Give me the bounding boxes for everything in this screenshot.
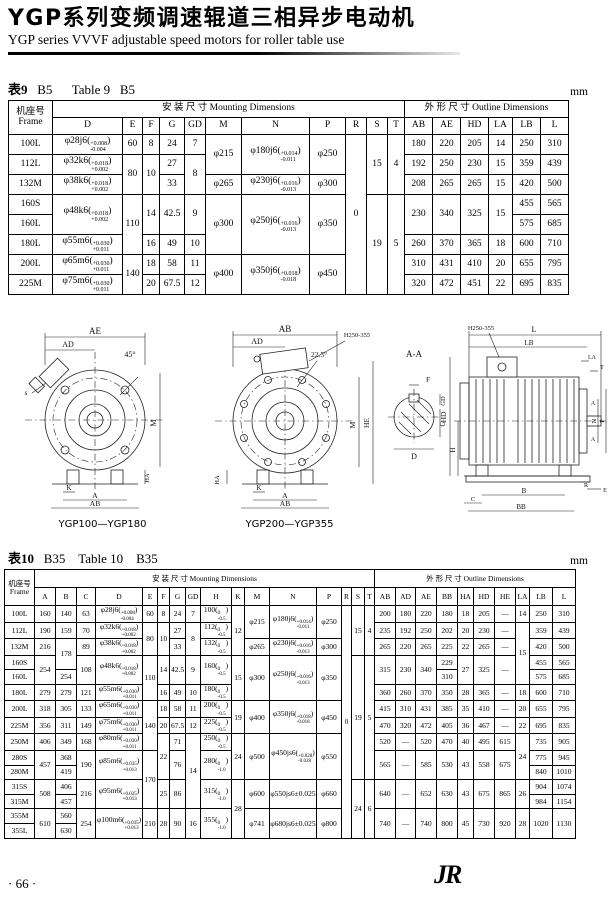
dim-m-label: M bbox=[348, 422, 357, 429]
table-cell: 260 bbox=[405, 235, 433, 255]
table-cell: φ600 bbox=[245, 780, 270, 809]
table-cell: 405 bbox=[437, 717, 458, 734]
table-cell: 18 bbox=[143, 255, 160, 275]
table-cell: 615 bbox=[495, 734, 516, 751]
table-cell: F bbox=[143, 118, 160, 135]
drawing-front-large: AB AD 22.5° H250-355 HE M HA K A AB YGP2… bbox=[197, 317, 382, 530]
table-cell: 8 bbox=[185, 155, 206, 195]
table-cell: P bbox=[310, 118, 346, 135]
table-cell: 28 bbox=[232, 780, 245, 838]
table-cell: 368 bbox=[56, 750, 77, 765]
table-cell: 208 bbox=[405, 175, 433, 195]
table-cell: 140 bbox=[143, 701, 158, 751]
table-cell: 230 bbox=[405, 195, 433, 235]
table-cell: 168 bbox=[77, 734, 96, 751]
table-cell: 180(0-0.5) bbox=[201, 684, 232, 701]
table-cell: φ180j6(+0.014-0.011) bbox=[242, 135, 310, 175]
table10: 机座号Frame安 装 尺 寸 Mounting Dimensions外 形 尺… bbox=[4, 569, 576, 838]
table-cell: 508 bbox=[35, 780, 56, 809]
table-cell: φ250 bbox=[310, 135, 346, 175]
table-cell: — bbox=[495, 717, 516, 734]
table-cell: 20 bbox=[516, 701, 530, 718]
table-cell: GD bbox=[186, 588, 201, 606]
table-cell: 340 bbox=[416, 655, 437, 684]
table-cell: 265 bbox=[461, 175, 489, 195]
dim-bb-label: BB bbox=[516, 503, 526, 511]
table-cell: 112L bbox=[5, 622, 35, 639]
table10-caption-row: 表10 B35 Table 10 B35 mm bbox=[8, 548, 588, 567]
table-cell: 16 bbox=[143, 235, 160, 255]
table-cell: 775 bbox=[530, 750, 553, 765]
table-cell: 11 bbox=[185, 255, 206, 275]
table-cell: 310 bbox=[541, 135, 569, 155]
table-cell: 67.5 bbox=[160, 275, 185, 295]
table-cell: 11 bbox=[186, 701, 201, 718]
table-cell: 25 bbox=[158, 780, 170, 809]
section-label: A-A bbox=[406, 349, 422, 359]
table-cell: 190 bbox=[35, 622, 56, 639]
table-cell: 431 bbox=[433, 255, 461, 275]
table-cell: 279 bbox=[56, 684, 77, 701]
table-cell: 385 bbox=[437, 701, 458, 718]
table-cell: — bbox=[495, 701, 516, 718]
table-cell: 467 bbox=[474, 717, 495, 734]
header-row: 机座号Frame安 装 尺 寸 Mounting Dimensions外 形 尺… bbox=[5, 570, 576, 588]
table-cell: 1130 bbox=[553, 809, 576, 838]
page-title-en: YGP series VVVF adjustable speed motors … bbox=[8, 32, 602, 48]
table-cell: φ80m6(+0.030+0.011) bbox=[96, 734, 143, 751]
table-cell: 310 bbox=[553, 606, 576, 623]
table-cell: φ230j6(+0.016-0.013) bbox=[270, 639, 317, 656]
drawing-caption-large: YGP200—YGP355 bbox=[246, 519, 334, 530]
table-cell: φ800 bbox=[317, 809, 342, 838]
table-cell: 565 bbox=[375, 750, 396, 779]
table-cell: 265 bbox=[375, 639, 396, 656]
table-cell: 160S bbox=[5, 655, 35, 670]
table-cell: 225 bbox=[437, 639, 458, 656]
table-cell: B bbox=[56, 588, 77, 606]
table-cell: 49 bbox=[160, 235, 185, 255]
table-cell: 419 bbox=[56, 765, 77, 780]
table-cell: 159 bbox=[56, 622, 77, 639]
dim-e-label: E bbox=[603, 488, 607, 494]
table-cell: T bbox=[388, 118, 405, 135]
table-cell: 22 bbox=[158, 734, 170, 780]
table-row: 132Mφ38k6(+0.018+0.002)33φ265φ230j6(+0.0… bbox=[9, 175, 569, 195]
table-cell: 200L bbox=[9, 255, 53, 275]
table-cell: 外 形 尺 寸 Outline Dimensions bbox=[405, 101, 569, 118]
dim-ad-label: AD bbox=[251, 337, 263, 346]
table-cell: 685 bbox=[553, 670, 576, 685]
table-cell: φ180j6(+0.014-0.011) bbox=[270, 606, 317, 639]
table-cell: 865 bbox=[495, 780, 516, 809]
table-cell: 250 bbox=[433, 155, 461, 175]
table-cell: 730 bbox=[474, 809, 495, 838]
table10-unit: mm bbox=[570, 555, 588, 567]
table-cell: 100L bbox=[5, 606, 35, 623]
table-cell: 205 bbox=[474, 606, 495, 623]
table-cell: 4 bbox=[365, 606, 375, 656]
table-cell: 15 bbox=[232, 655, 245, 701]
table-cell: 455 bbox=[530, 655, 553, 670]
table-cell: φ450js6(+0.028-0.028) bbox=[270, 734, 317, 780]
table-cell: 80 bbox=[143, 622, 158, 655]
table-cell: φ300 bbox=[206, 195, 242, 255]
table-cell: 225M bbox=[5, 717, 35, 734]
table-cell: N bbox=[270, 588, 317, 606]
table-cell: 170 bbox=[143, 750, 158, 808]
table-cell: 675 bbox=[495, 750, 516, 779]
table-cell: 835 bbox=[553, 717, 576, 734]
table-cell: 7 bbox=[186, 606, 201, 623]
table-cell: 320 bbox=[405, 275, 433, 295]
table-cell: P bbox=[317, 588, 342, 606]
page-number: · 66 · bbox=[8, 876, 36, 892]
table-cell: — bbox=[495, 655, 516, 684]
table-cell: 795 bbox=[541, 255, 569, 275]
table-cell: LB bbox=[513, 118, 541, 135]
dim-k-label: K bbox=[66, 484, 71, 492]
table-cell: φ350 bbox=[310, 195, 346, 255]
dim-ha-label: HA bbox=[144, 473, 151, 483]
table-cell: L bbox=[553, 588, 576, 606]
table-cell: S bbox=[352, 588, 365, 606]
table-cell: 4 bbox=[388, 135, 405, 195]
table-cell: φ450 bbox=[310, 255, 346, 295]
table-cell: 160L bbox=[9, 215, 53, 235]
table-cell: φ48k6(+0.018+0.002) bbox=[53, 195, 123, 235]
table-cell: 451 bbox=[461, 275, 489, 295]
table-cell: 16 bbox=[158, 684, 170, 701]
table-cell: 8 bbox=[186, 622, 201, 655]
table-cell: 740 bbox=[375, 809, 396, 838]
table-cell: 355M bbox=[5, 809, 35, 824]
table-row: 200Lφ65m6(+0.030+0.011)140185811φ400φ350… bbox=[9, 255, 569, 275]
table-cell: φ28j6(+0.008-0.004) bbox=[96, 606, 143, 623]
table-cell: 140 bbox=[56, 606, 77, 623]
table-cell: 90 bbox=[170, 809, 186, 838]
table-cell: 180L bbox=[5, 684, 35, 701]
table-cell: 370 bbox=[433, 235, 461, 255]
table-cell: 机座号Frame bbox=[5, 570, 35, 606]
table-cell: 14 bbox=[143, 195, 160, 235]
table-cell: BB bbox=[437, 588, 458, 606]
table-cell: 27 bbox=[170, 622, 186, 639]
table-cell: L bbox=[541, 118, 569, 135]
table-cell: 160L bbox=[5, 670, 35, 685]
table-cell: 安 装 尺 寸 Mounting Dimensions bbox=[35, 570, 375, 588]
table-cell: 520 bbox=[416, 734, 437, 751]
dim-la-label: LA bbox=[588, 355, 597, 361]
dimension-drawings: AE AD 45° s M HA K A AB YGP100—YGP180 bbox=[10, 317, 610, 530]
table-row: 200L318305133φ65m6(+0.030+0.011)14018581… bbox=[5, 701, 576, 718]
table-cell: 254 bbox=[56, 670, 77, 685]
table-cell: 20 bbox=[458, 622, 474, 639]
dim-k-label: K bbox=[256, 484, 261, 492]
table-cell: 14 bbox=[186, 734, 201, 809]
table-cell: 42.5 bbox=[160, 195, 185, 235]
table-cell: 192 bbox=[396, 622, 416, 639]
table-cell: 24 bbox=[352, 780, 365, 838]
dim-s-label: s bbox=[25, 389, 28, 397]
table-cell: 160 bbox=[35, 606, 56, 623]
table-cell: 500 bbox=[541, 175, 569, 195]
table-cell: 12 bbox=[185, 275, 206, 295]
table-cell: φ32k6(+0.018+0.002) bbox=[96, 622, 143, 639]
table-cell: 190 bbox=[77, 750, 96, 779]
table-cell: 24 bbox=[232, 734, 245, 780]
table-cell: 18 bbox=[489, 235, 513, 255]
table-cell: 67.5 bbox=[170, 717, 186, 734]
table-cell: 905 bbox=[553, 734, 576, 751]
table-cell: 20 bbox=[158, 717, 170, 734]
table-cell: 180 bbox=[437, 606, 458, 623]
table-row: 160Sφ48k6(+0.018+0.002)1101442.59φ300φ25… bbox=[9, 195, 569, 215]
table-cell: E bbox=[123, 118, 143, 135]
table-cell: φ85m6(+0.035+0.013) bbox=[96, 750, 143, 779]
table-cell: 325 bbox=[474, 655, 495, 684]
table-cell: 35 bbox=[458, 701, 474, 718]
table-cell: φ75m6(+0.030+0.011) bbox=[53, 275, 123, 295]
table-cell: φ350 bbox=[317, 655, 342, 701]
h250-callout: H250-355 bbox=[468, 325, 494, 332]
table-cell: 71 bbox=[170, 734, 186, 751]
table-cell: 外 形 尺 寸 Outline Dimensions bbox=[375, 570, 576, 588]
table-cell: 27 bbox=[458, 655, 474, 684]
table-cell: 235 bbox=[375, 622, 396, 639]
table-cell: 495 bbox=[474, 734, 495, 751]
table-cell: φ100m6(+0.035+0.013) bbox=[96, 809, 143, 838]
table-cell: 470 bbox=[375, 717, 396, 734]
table-cell: 110 bbox=[123, 195, 143, 255]
table-cell: 70 bbox=[77, 622, 96, 639]
table-cell: 60 bbox=[123, 135, 143, 155]
table-cell: 265 bbox=[474, 639, 495, 656]
table-cell: 220 bbox=[433, 135, 461, 155]
table-cell: 15 bbox=[489, 195, 513, 235]
table-cell: φ38k6(+0.018+0.002) bbox=[96, 639, 143, 656]
table-cell: 472 bbox=[433, 275, 461, 295]
table-cell: 0 bbox=[346, 135, 367, 295]
table-cell: 560 bbox=[56, 809, 77, 824]
dim-m-label: M bbox=[149, 420, 158, 427]
table-cell: 655 bbox=[513, 255, 541, 275]
table-cell: φ450 bbox=[317, 701, 342, 734]
table-cell: 43 bbox=[458, 750, 474, 779]
table-cell: 安 装 尺 寸 Mounting Dimensions bbox=[53, 101, 405, 118]
table-cell: 9 bbox=[185, 195, 206, 235]
table-cell: 14 bbox=[516, 606, 530, 623]
table-cell: 140 bbox=[123, 255, 143, 295]
table-cell: 100L bbox=[9, 135, 53, 155]
table-cell: 27 bbox=[160, 155, 185, 175]
table-cell: φ28j6(+0.008-0.004) bbox=[53, 135, 123, 155]
table-cell: 280M bbox=[5, 765, 35, 780]
table-cell: 86 bbox=[170, 780, 186, 809]
table-cell: 610 bbox=[35, 809, 56, 838]
table-cell: 80 bbox=[123, 155, 143, 195]
table-cell: LA bbox=[489, 118, 513, 135]
table-cell: 470 bbox=[437, 734, 458, 751]
table-cell: 45 bbox=[458, 809, 474, 838]
table-cell: — bbox=[396, 734, 416, 751]
table-cell: 365 bbox=[474, 684, 495, 701]
table-cell: 49 bbox=[170, 684, 186, 701]
table-cell: 180L bbox=[9, 235, 53, 255]
table-cell: 420 bbox=[513, 175, 541, 195]
table-cell: 695 bbox=[513, 275, 541, 295]
table-cell: R bbox=[346, 118, 367, 135]
table-cell: 60 bbox=[143, 606, 158, 623]
dim-l-label: L bbox=[532, 325, 537, 334]
table-cell: 439 bbox=[541, 155, 569, 175]
table-cell: φ300 bbox=[310, 175, 346, 195]
table-cell: 250(0-0.5) bbox=[201, 734, 232, 751]
table-cell: 8 bbox=[158, 606, 170, 623]
dim-d-label: D bbox=[411, 452, 417, 461]
table-cell: 685 bbox=[541, 215, 569, 235]
table-cell: 565 bbox=[541, 195, 569, 215]
table-cell: K bbox=[232, 588, 245, 606]
table-cell: 280S bbox=[5, 750, 35, 765]
table-cell: 121 bbox=[77, 684, 96, 701]
table-cell: 984 bbox=[530, 794, 553, 809]
table-cell: HA bbox=[458, 588, 474, 606]
table-cell: 7 bbox=[185, 135, 206, 155]
table-cell: φ75m6(+0.030+0.011) bbox=[96, 717, 143, 734]
table-cell: φ350j6(+0.018-0.018) bbox=[270, 701, 317, 734]
table-cell: 740 bbox=[416, 809, 437, 838]
dim-b-label: B bbox=[522, 487, 527, 495]
table-cell: 200 bbox=[375, 606, 396, 623]
table-cell: A bbox=[35, 588, 56, 606]
table-cell: 305 bbox=[56, 701, 77, 718]
table-cell: 18 bbox=[158, 701, 170, 718]
table-cell: R bbox=[342, 588, 352, 606]
page-title-zh: YGP系列变频调速辊道三相异步电动机 bbox=[8, 6, 602, 31]
table-cell: 15 bbox=[367, 135, 388, 195]
table-cell: 112(0-0.5) bbox=[201, 622, 232, 639]
table-cell: 210 bbox=[143, 809, 158, 838]
table-cell: 43 bbox=[458, 780, 474, 809]
dim-ad-label: AD bbox=[62, 340, 74, 349]
table-cell: AE bbox=[416, 588, 437, 606]
table9-container: 机座号Frame安 装 尺 寸 Mounting Dimensions外 形 尺… bbox=[0, 100, 610, 295]
table-cell: 19 bbox=[367, 195, 388, 295]
table-cell: AB bbox=[375, 588, 396, 606]
table-cell: 800 bbox=[437, 809, 458, 838]
table-cell: 160(0-0.5) bbox=[201, 655, 232, 684]
table-cell: φ680js6±0.025 bbox=[270, 809, 317, 838]
table-cell: φ741 bbox=[245, 809, 270, 838]
table-cell: 220 bbox=[396, 639, 416, 656]
dim-h-label: H bbox=[449, 448, 457, 453]
table-cell: 160S bbox=[9, 195, 53, 215]
table9-caption-row: 表9 B5 Table 9 B5 mm bbox=[8, 79, 588, 98]
table-cell: φ32k6(+0.018+0.002) bbox=[53, 155, 123, 175]
table-cell: 457 bbox=[35, 750, 56, 779]
table-cell: 15 bbox=[489, 155, 513, 175]
table-cell: 1074 bbox=[553, 780, 576, 795]
table-cell: 710 bbox=[541, 235, 569, 255]
table-cell: 254 bbox=[35, 655, 56, 684]
header-row: 机座号Frame安 装 尺 寸 Mounting Dimensions外 形 尺… bbox=[9, 101, 569, 118]
table-cell: 24 bbox=[516, 734, 530, 780]
dim-a1-label: A bbox=[591, 401, 596, 407]
table-cell: D bbox=[53, 118, 123, 135]
table-cell: φ48k6(+0.018+0.002) bbox=[96, 655, 143, 684]
table-cell: φ250j6(+0.016-0.013) bbox=[270, 655, 317, 701]
table-cell: 565 bbox=[553, 655, 576, 670]
dim-ha-label: HA bbox=[214, 475, 221, 485]
table-cell: AD bbox=[396, 588, 416, 606]
table-cell: 355L bbox=[5, 823, 35, 838]
table-cell: 370 bbox=[416, 684, 437, 701]
table-cell: 415 bbox=[375, 701, 396, 718]
table-cell: 9 bbox=[186, 655, 201, 684]
table10-container: 机座号Frame安 装 尺 寸 Mounting Dimensions外 形 尺… bbox=[0, 569, 610, 838]
table-cell: 600 bbox=[530, 684, 553, 701]
table-cell: 406 bbox=[35, 734, 56, 751]
table-cell: 178 bbox=[56, 639, 77, 670]
table-cell: 10 bbox=[143, 155, 160, 195]
table-cell: — bbox=[396, 750, 416, 779]
table-cell: 14 bbox=[489, 135, 513, 155]
table-cell: 230 bbox=[474, 622, 495, 639]
table-cell: 108 bbox=[77, 655, 96, 684]
table-cell: 457 bbox=[56, 794, 77, 809]
table-cell: AE bbox=[433, 118, 461, 135]
table-cell: 254 bbox=[77, 809, 96, 838]
table-cell: F bbox=[158, 588, 170, 606]
table-cell: 840 bbox=[530, 765, 553, 780]
table-cell: 0 bbox=[342, 606, 352, 838]
table-cell: 530 bbox=[437, 750, 458, 779]
table9-caption: 表9 B5 Table 9 B5 bbox=[8, 79, 135, 98]
table-cell: HD bbox=[474, 588, 495, 606]
table-cell: 36 bbox=[458, 717, 474, 734]
table-cell: 1154 bbox=[553, 794, 576, 809]
table-cell: 431 bbox=[416, 701, 437, 718]
table-cell: 640 bbox=[375, 780, 396, 809]
table-cell: 6 bbox=[365, 780, 375, 838]
table-cell: 24 bbox=[170, 606, 186, 623]
table-cell: 200(0-0.5) bbox=[201, 701, 232, 718]
table-cell: G bbox=[170, 588, 186, 606]
table-cell: — bbox=[396, 809, 416, 838]
table-cell: 205 bbox=[461, 135, 489, 155]
table-row: 132M21617889φ38k6(+0.018+0.002)33132(0-0… bbox=[5, 639, 576, 656]
table-cell: 315M bbox=[5, 794, 35, 809]
dim-he-label: HE bbox=[362, 418, 371, 428]
table-cell: 20 bbox=[489, 255, 513, 275]
table-cell: 355(0-1.0) bbox=[201, 809, 232, 838]
table-cell: φ230j6(+0.016-0.013) bbox=[242, 175, 310, 195]
table-cell: 15 bbox=[489, 175, 513, 195]
table-cell: HE bbox=[495, 588, 516, 606]
table-cell: 360 bbox=[375, 684, 396, 701]
table-cell: 22 bbox=[516, 717, 530, 734]
table-cell: 26 bbox=[516, 780, 530, 809]
table-cell: 216 bbox=[35, 639, 56, 656]
table-cell: 225(0-0.5) bbox=[201, 717, 232, 734]
table-cell: 20 bbox=[143, 275, 160, 295]
dim-n-label: N bbox=[591, 419, 598, 424]
table-cell: 575 bbox=[513, 215, 541, 235]
table-cell: 16 bbox=[186, 809, 201, 838]
table-cell: 230 bbox=[396, 655, 416, 684]
table-row: 355M610560254φ100m6(+0.035+0.013)2102890… bbox=[5, 809, 576, 824]
